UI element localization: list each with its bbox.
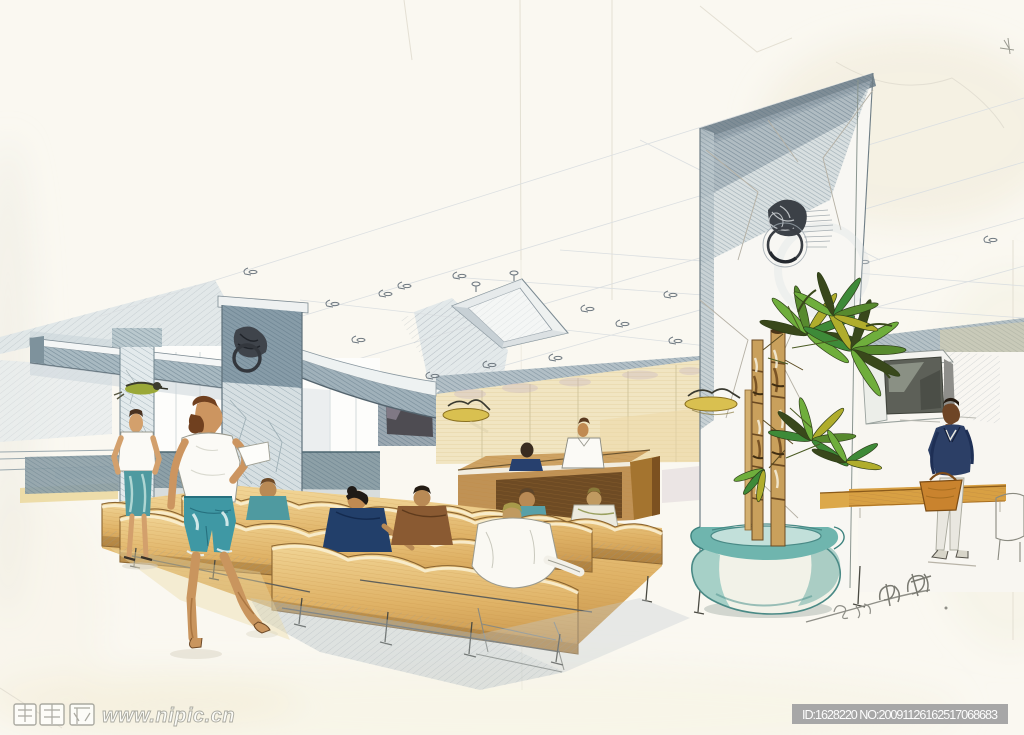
- svg-text:www.nipic.cn: www.nipic.cn: [102, 705, 235, 727]
- svg-text:ID:1628220 NO:2009112616251706: ID:1628220 NO:20091126162517068683: [802, 708, 998, 722]
